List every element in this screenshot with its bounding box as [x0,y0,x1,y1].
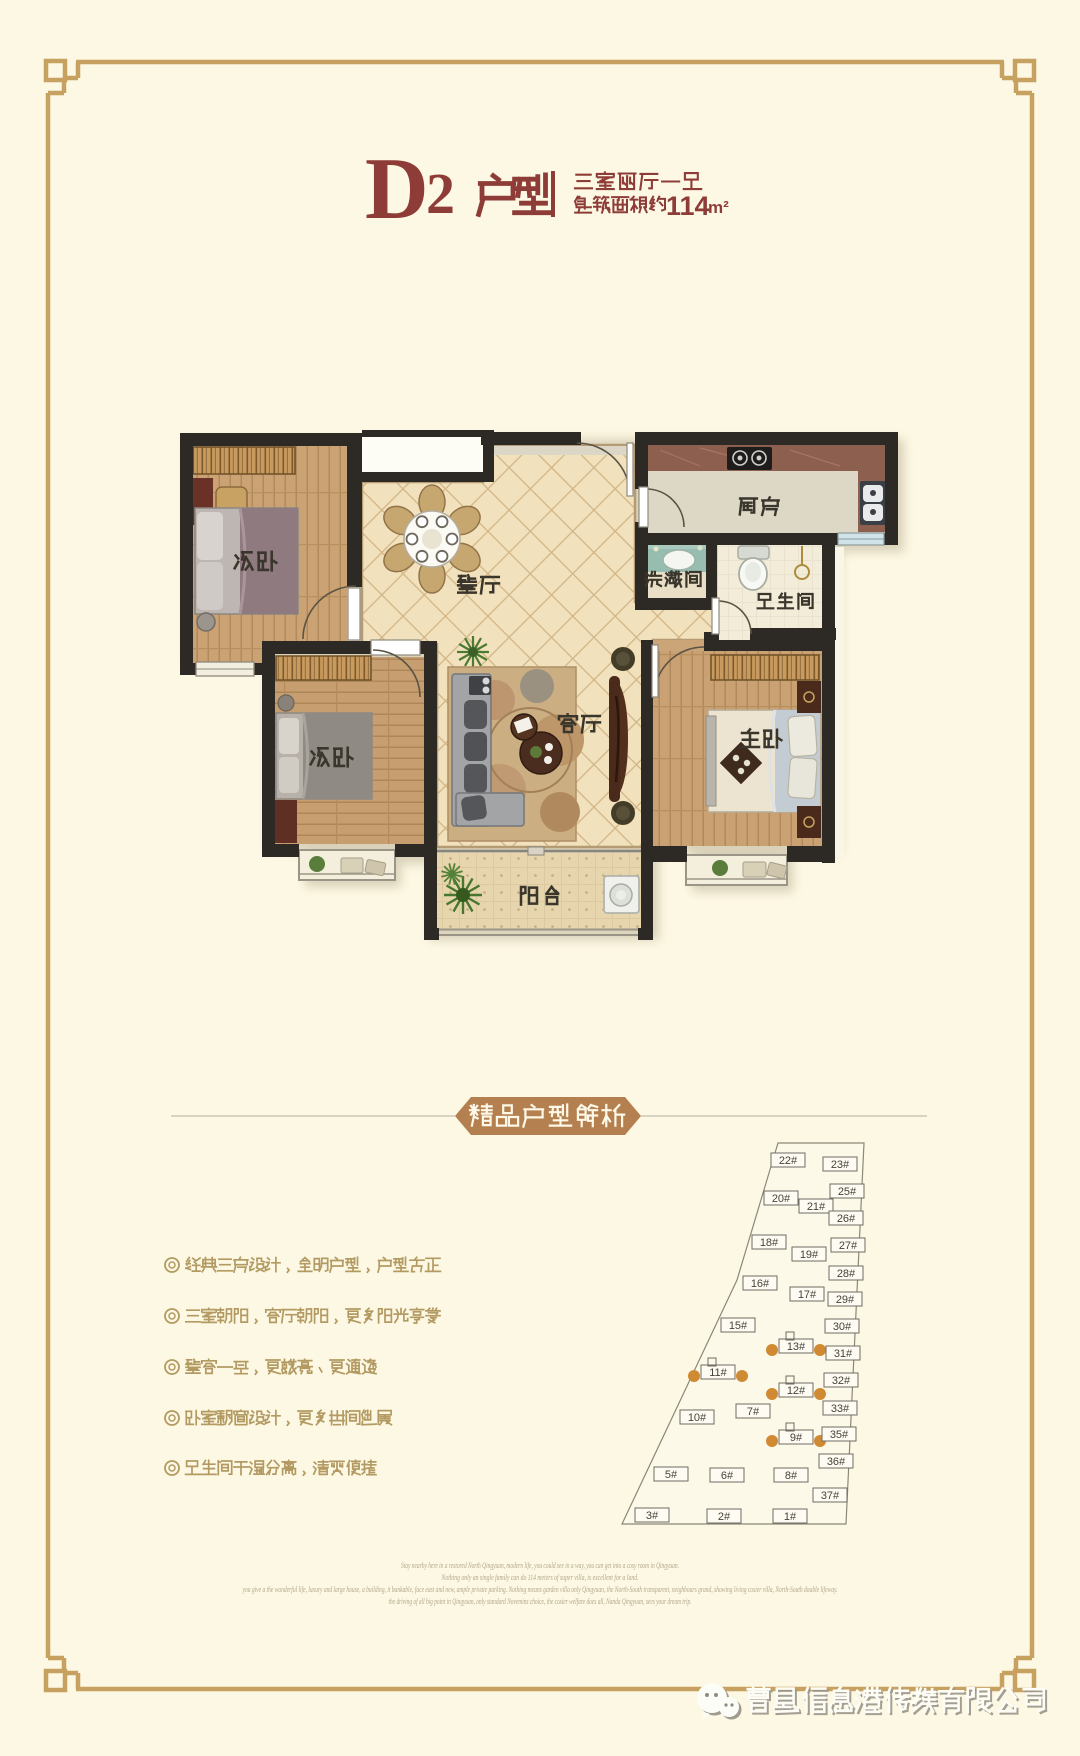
svg-text:12#: 12# [787,1385,806,1397]
svg-text:28#: 28# [837,1268,856,1280]
svg-text:D: D [365,141,429,238]
svg-text:9#: 9# [790,1432,803,1444]
svg-text:23#: 23# [831,1159,850,1171]
svg-text:Nothing only an single family: Nothing only an single family can do 114… [441,1572,639,1582]
svg-text:21#: 21# [807,1201,826,1213]
svg-text:3#: 3# [646,1510,659,1522]
svg-text:10#: 10# [688,1412,707,1424]
svg-text:you give a the wonderful life,: you give a the wonderful life, luxury an… [242,1584,838,1594]
svg-text:36#: 36# [827,1456,846,1468]
svg-text:114: 114 [666,191,710,221]
svg-text:2#: 2# [718,1511,731,1523]
svg-text:Stay nearby here in a restored: Stay nearby here in a restored North Qin… [401,1560,679,1570]
svg-text:11#: 11# [709,1367,727,1379]
svg-text:7#: 7# [747,1406,760,1418]
svg-text:30#: 30# [833,1321,852,1333]
svg-text:31#: 31# [834,1348,853,1360]
svg-text:29#: 29# [836,1294,855,1306]
svg-text:the driving of all big point i: the driving of all big point in Qingyuan… [389,1596,692,1606]
svg-text:35#: 35# [830,1429,849,1441]
svg-text:33#: 33# [831,1403,850,1415]
svg-text:20#: 20# [772,1193,791,1205]
svg-text:19#: 19# [800,1249,819,1261]
svg-text:17#: 17# [798,1289,817,1301]
svg-text:5#: 5# [665,1469,678,1481]
svg-text:m²: m² [708,198,729,217]
svg-text:22#: 22# [779,1155,798,1167]
svg-text:18#: 18# [760,1237,779,1249]
svg-text:6#: 6# [721,1470,734,1482]
svg-text:32#: 32# [832,1375,851,1387]
svg-text:1#: 1# [784,1511,797,1523]
svg-text:37#: 37# [821,1490,840,1502]
svg-text:26#: 26# [837,1213,856,1225]
svg-text:27#: 27# [839,1240,858,1252]
svg-text:13#: 13# [787,1341,806,1353]
svg-text:2: 2 [426,161,455,226]
svg-text:8#: 8# [785,1470,798,1482]
svg-text:15#: 15# [729,1320,748,1332]
svg-text:25#: 25# [838,1186,857,1198]
svg-text:16#: 16# [751,1278,770,1290]
